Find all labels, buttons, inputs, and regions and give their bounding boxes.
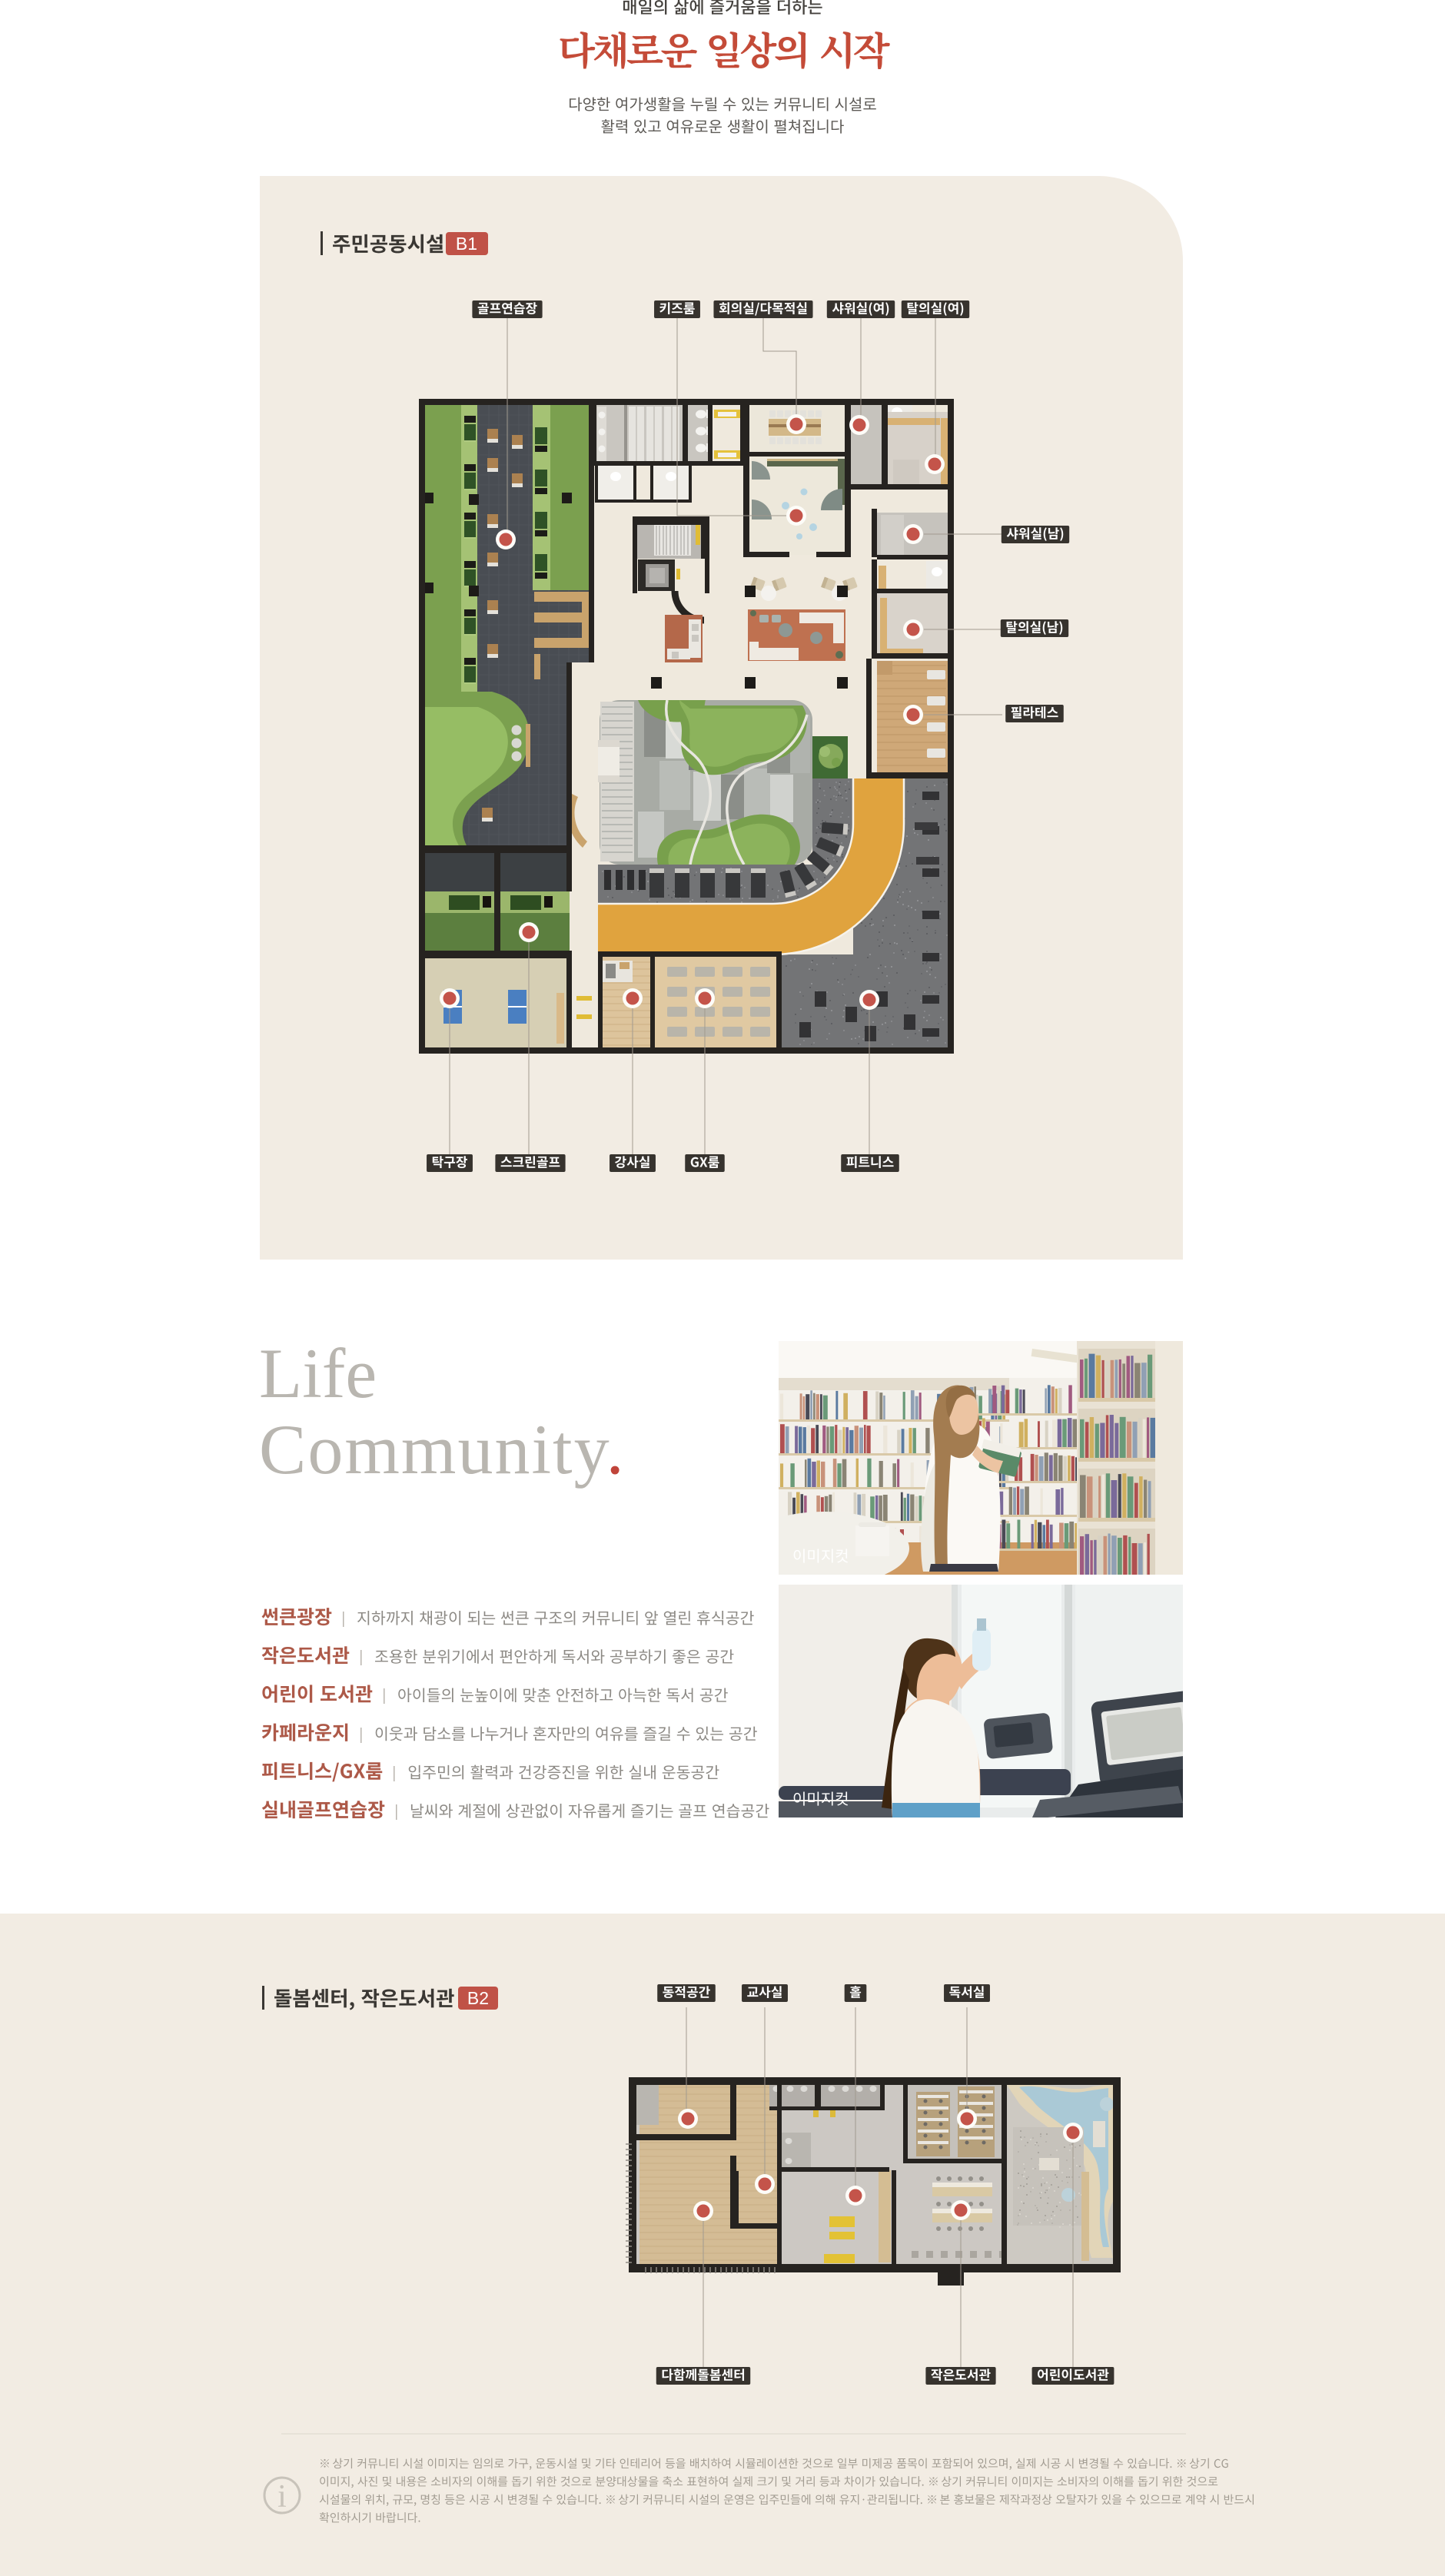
svg-text:B1: B1 [456,234,477,254]
svg-text:i: i [277,2479,287,2515]
svg-text:Life: Life [259,1334,377,1412]
svg-text:Community.: Community. [259,1410,626,1489]
svg-text:B2: B2 [467,1988,489,2008]
